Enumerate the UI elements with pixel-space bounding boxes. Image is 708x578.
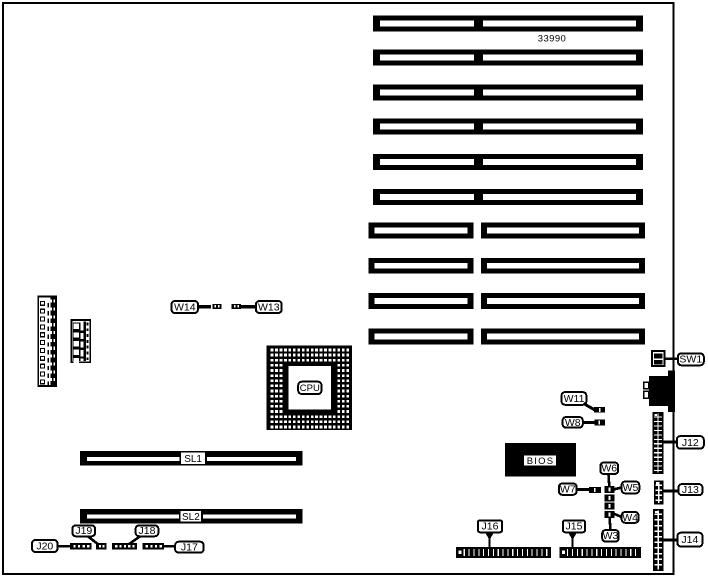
svg-text:J16: J16 bbox=[482, 521, 499, 533]
svg-text:J12: J12 bbox=[682, 437, 699, 449]
svg-text:33990: 33990 bbox=[538, 34, 566, 45]
svg-text:J17: J17 bbox=[181, 542, 198, 554]
svg-text:W11: W11 bbox=[564, 393, 585, 405]
svg-text:SL2: SL2 bbox=[182, 512, 200, 523]
svg-text:SL1: SL1 bbox=[184, 454, 202, 465]
svg-text:W13: W13 bbox=[258, 301, 280, 313]
svg-text:W14: W14 bbox=[174, 301, 196, 313]
svg-text:W3: W3 bbox=[603, 530, 619, 542]
svg-text:W4: W4 bbox=[622, 512, 638, 524]
svg-text:W7: W7 bbox=[560, 484, 576, 496]
svg-text:W6: W6 bbox=[601, 463, 617, 475]
svg-text:J13: J13 bbox=[682, 484, 699, 496]
svg-text:SW1: SW1 bbox=[679, 354, 702, 366]
svg-text:CPU: CPU bbox=[300, 383, 320, 394]
svg-text:W5: W5 bbox=[623, 482, 639, 494]
svg-text:J20: J20 bbox=[36, 540, 53, 552]
svg-text:J18: J18 bbox=[139, 525, 156, 537]
svg-text:J19: J19 bbox=[75, 525, 92, 537]
svg-text:W8: W8 bbox=[565, 417, 581, 429]
svg-text:BIOS: BIOS bbox=[527, 456, 555, 467]
svg-text:J15: J15 bbox=[566, 521, 583, 533]
svg-text:J14: J14 bbox=[681, 534, 698, 546]
